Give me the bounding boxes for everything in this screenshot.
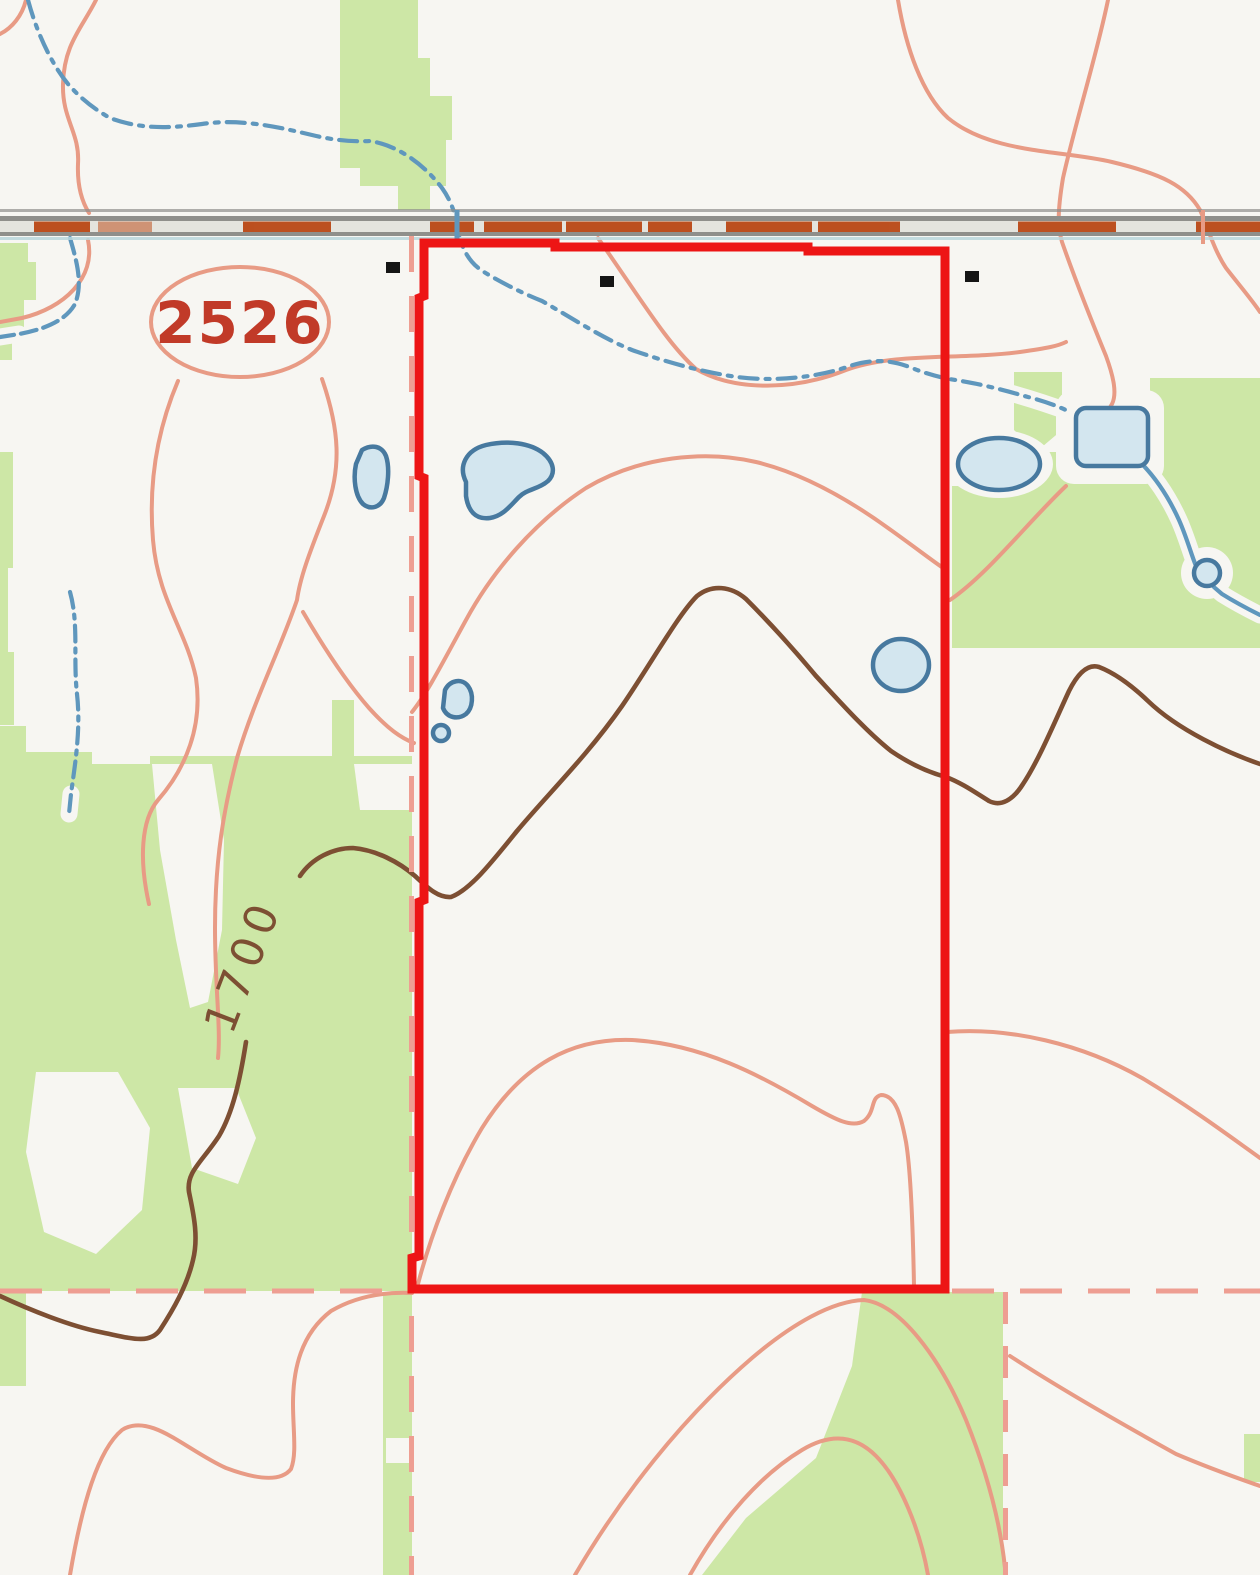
topo-map-screenshot: 1700 <box>0 0 1260 1575</box>
route-shield-number: 2526 <box>155 289 324 357</box>
clearing-near-boundary <box>354 764 412 810</box>
section-corner-dot <box>600 276 614 287</box>
pond <box>1076 408 1148 466</box>
road-outer-line <box>0 209 1260 212</box>
road-edge-bottom <box>0 232 1260 236</box>
pond <box>443 681 472 717</box>
road-edge-top <box>0 216 1260 221</box>
pond <box>873 639 929 691</box>
section-corner-dot <box>386 262 400 273</box>
clearing-bottom-strip-notch <box>386 1438 412 1463</box>
veg-right-edge-sliver <box>1244 1434 1260 1482</box>
pond <box>433 725 449 741</box>
map-canvas[interactable]: 1700 <box>0 0 1260 1575</box>
pond <box>958 438 1040 490</box>
road-blue-edge <box>0 237 1260 240</box>
pond <box>355 447 389 508</box>
pond <box>1194 560 1220 586</box>
veg-bottom-strip <box>383 1292 412 1575</box>
section-corner-dot <box>965 271 979 282</box>
